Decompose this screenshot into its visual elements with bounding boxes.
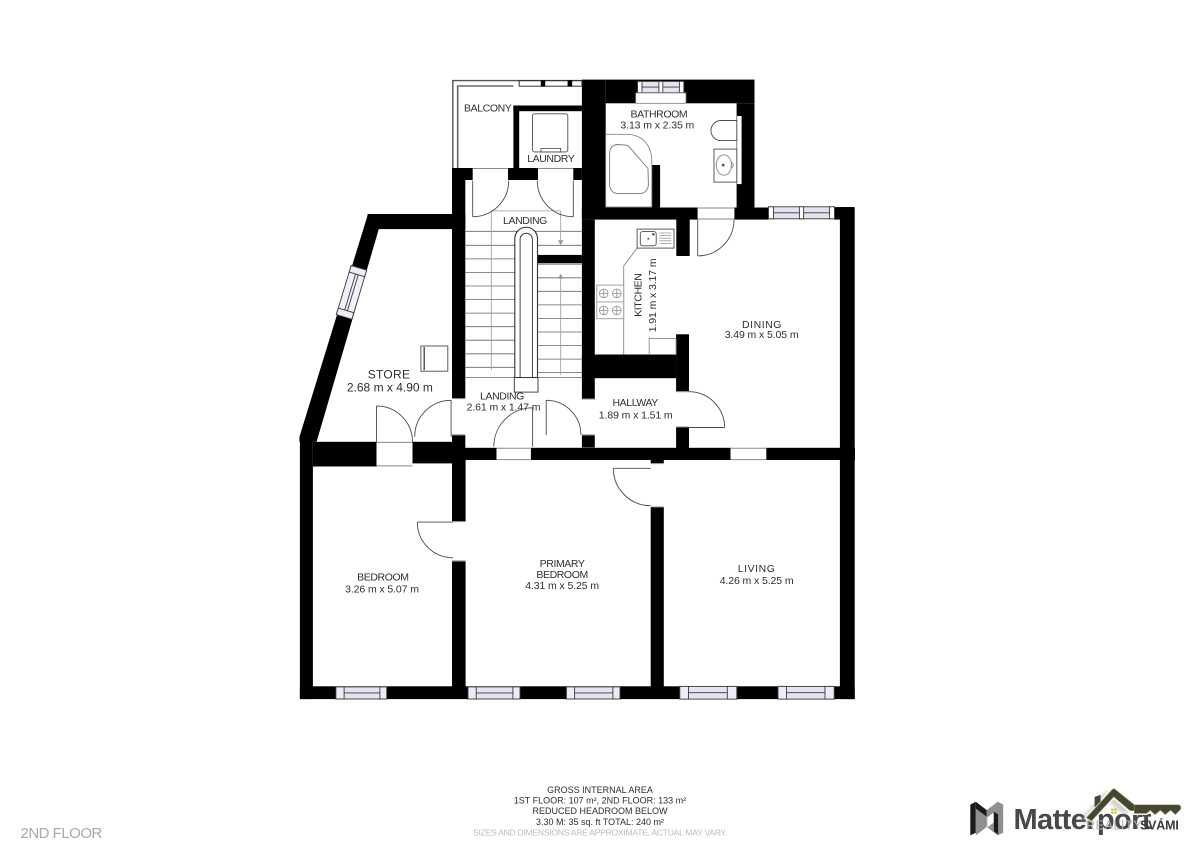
svg-text:3.30 M: 35 sq. ft TOTAL: 240 m: 3.30 M: 35 sq. ft TOTAL: 240 m² [536, 817, 664, 827]
svg-text:REALITY: REALITY [1086, 818, 1142, 832]
svg-text:3.26 m x 5.07 m: 3.26 m x 5.07 m [345, 583, 419, 595]
svg-text:1.89 m x 1.51 m: 1.89 m x 1.51 m [599, 410, 673, 422]
svg-text:3.49 m x 5.05 m: 3.49 m x 5.05 m [725, 329, 799, 341]
svg-text:SVÁMI: SVÁMI [1140, 817, 1179, 832]
svg-text:LANDING: LANDING [503, 215, 547, 227]
svg-text:LIVING: LIVING [738, 563, 776, 575]
svg-text:3.13 m x 2.35 m: 3.13 m x 2.35 m [620, 120, 694, 132]
svg-text:1ST FLOOR: 107 m², 2ND FLOOR:: 1ST FLOOR: 107 m², 2ND FLOOR: 133 m² [514, 796, 686, 806]
svg-text:LAUNDRY: LAUNDRY [527, 153, 575, 165]
svg-text:1.91 m x 3.17 m: 1.91 m x 3.17 m [647, 258, 659, 332]
svg-text:REDUCED HEADROOM BELOW: REDUCED HEADROOM BELOW [532, 806, 668, 816]
svg-text:GROSS INTERNAL AREA: GROSS INTERNAL AREA [547, 785, 653, 795]
svg-text:KITCHEN: KITCHEN [633, 274, 645, 317]
svg-text:4.26 m x 5.25 m: 4.26 m x 5.25 m [720, 575, 794, 587]
svg-text:BALCONY: BALCONY [464, 103, 512, 115]
svg-text:BEDROOM: BEDROOM [357, 571, 408, 583]
svg-text:STORE: STORE [368, 367, 411, 381]
svg-text:2.68 m x 4.90 m: 2.68 m x 4.90 m [347, 381, 433, 395]
svg-text:SIZES AND DIMENSIONS ARE APPRO: SIZES AND DIMENSIONS ARE APPROXIMATE, AC… [473, 828, 727, 838]
svg-text:4.31 m x 5.25 m: 4.31 m x 5.25 m [525, 580, 599, 592]
svg-text:2ND FLOOR: 2ND FLOOR [21, 825, 103, 842]
svg-text:2.61 m x 1.47 m: 2.61 m x 1.47 m [467, 401, 541, 413]
svg-text:HALLWAY: HALLWAY [612, 397, 658, 409]
